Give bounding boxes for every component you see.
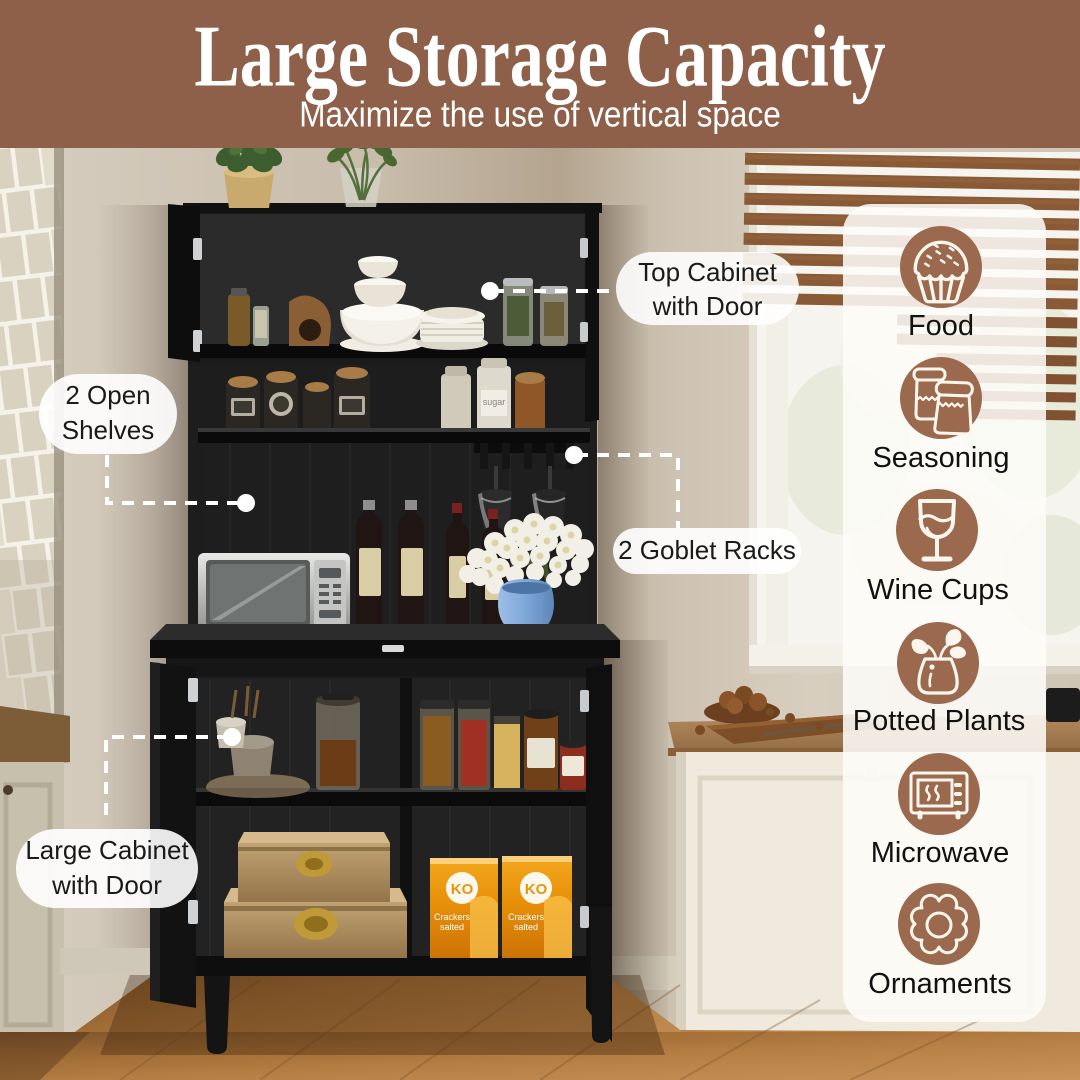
- svg-text:KO: KO: [451, 881, 474, 898]
- svg-text:salted: salted: [440, 922, 464, 932]
- svg-text:Crackers: Crackers: [508, 912, 545, 922]
- svg-text:sugar: sugar: [483, 397, 506, 407]
- svg-text:KO: KO: [525, 881, 548, 898]
- svg-text:Crackers: Crackers: [434, 912, 471, 922]
- svg-text:salted: salted: [514, 922, 538, 932]
